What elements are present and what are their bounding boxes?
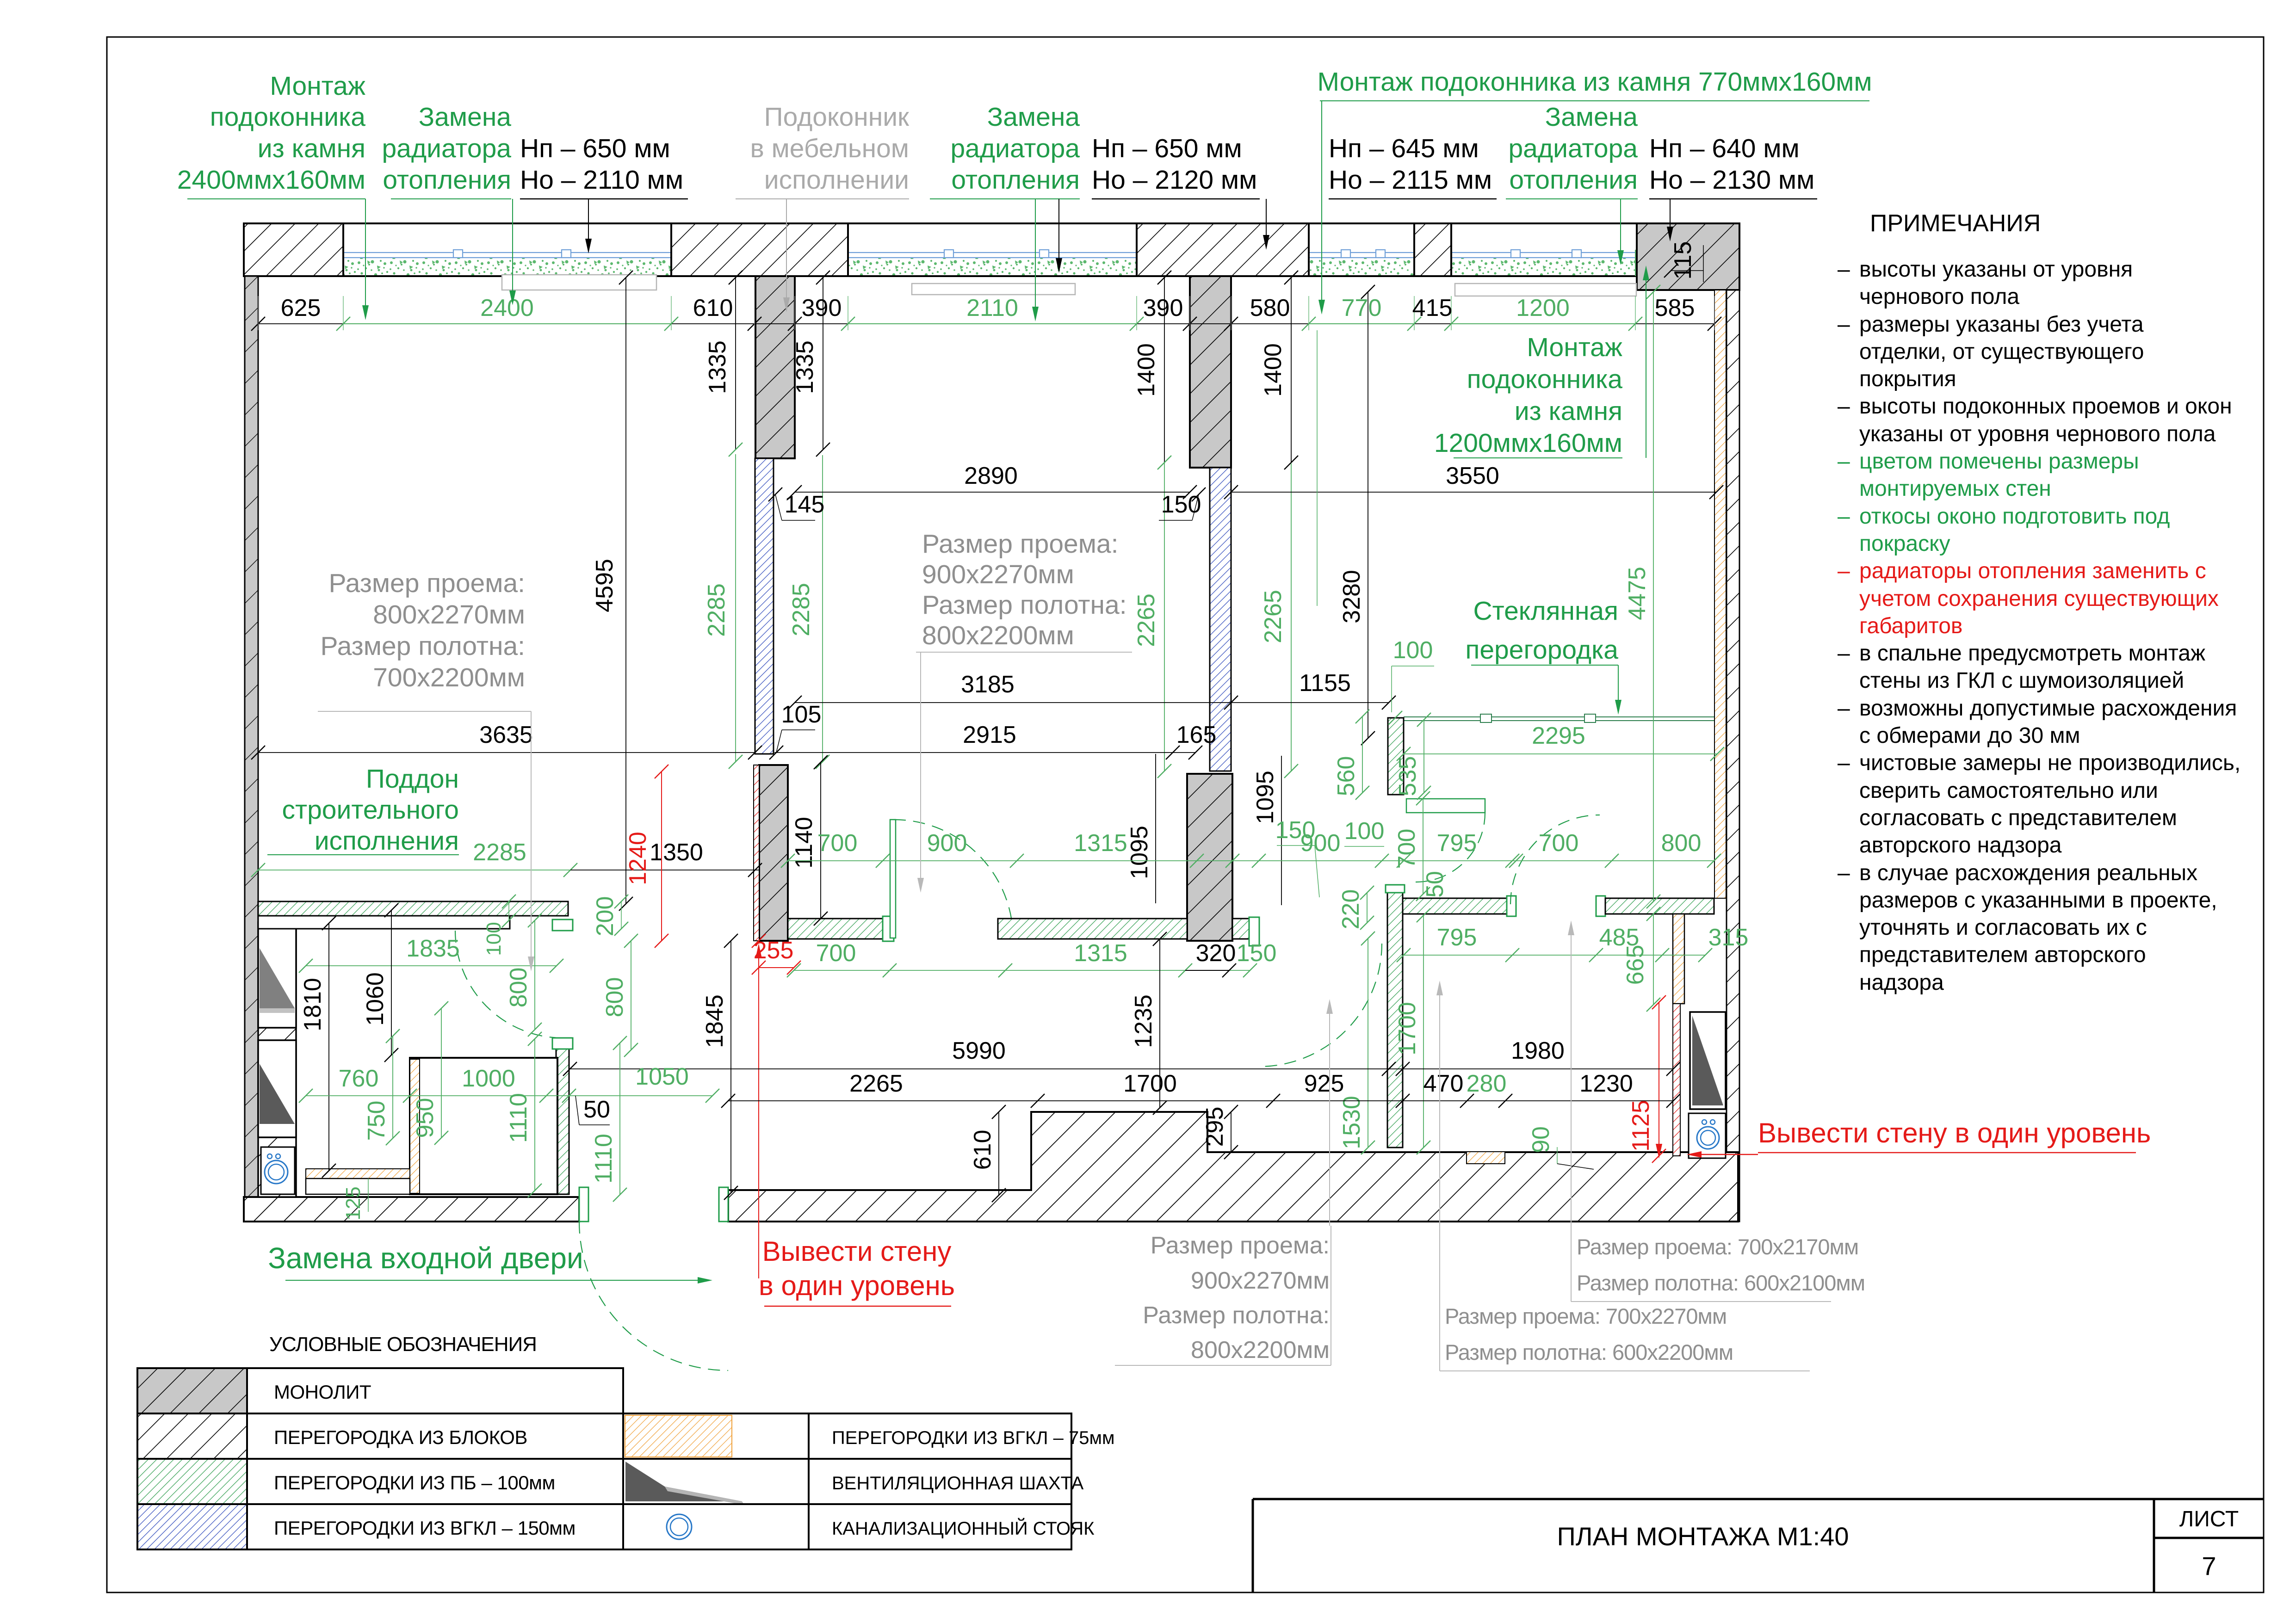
svg-text:795: 795 <box>1437 830 1477 857</box>
svg-text:5990: 5990 <box>952 1037 1006 1064</box>
svg-text:2285: 2285 <box>473 839 526 866</box>
svg-text:Нп – 645 мм: Нп – 645 мм <box>1329 134 1479 163</box>
svg-text:925: 925 <box>1304 1070 1344 1097</box>
svg-text:800: 800 <box>601 977 628 1018</box>
svg-text:1095: 1095 <box>1126 826 1153 879</box>
svg-text:указаны от уровня чернового по: указаны от уровня чернового пола <box>1859 422 2216 446</box>
svg-text:ПЛАН МОНТАЖА М1:40: ПЛАН МОНТАЖА М1:40 <box>1557 1522 1849 1551</box>
svg-text:Размер проема:: Размер проема: <box>1151 1232 1330 1259</box>
svg-text:1095: 1095 <box>1252 771 1279 824</box>
svg-text:2265: 2265 <box>849 1070 903 1097</box>
svg-text:560: 560 <box>1333 756 1360 796</box>
svg-text:3635: 3635 <box>479 722 533 748</box>
svg-text:возможны допустимые расхождени: возможны допустимые расхождения <box>1859 696 2237 721</box>
svg-text:–: – <box>1838 696 1850 721</box>
svg-text:1835: 1835 <box>406 935 460 962</box>
svg-text:согласовать с представителем: согласовать с представителем <box>1859 806 2177 830</box>
svg-text:МОНОЛИТ: МОНОЛИТ <box>274 1381 371 1403</box>
svg-text:900х2270мм: 900х2270мм <box>922 560 1074 589</box>
svg-text:Нп – 640 мм: Нп – 640 мм <box>1649 134 1800 163</box>
svg-text:Монтаж: Монтаж <box>1527 333 1622 362</box>
svg-text:800: 800 <box>505 968 532 1008</box>
svg-text:отопления: отопления <box>1509 165 1638 195</box>
svg-text:отопления: отопления <box>383 165 511 195</box>
svg-text:700: 700 <box>817 830 858 857</box>
svg-text:1155: 1155 <box>1299 670 1351 697</box>
svg-text:625: 625 <box>281 295 321 321</box>
svg-text:1230: 1230 <box>1579 1070 1633 1097</box>
svg-text:1845: 1845 <box>701 994 728 1048</box>
svg-text:Размер полотна:: Размер полотна: <box>320 631 525 661</box>
svg-text:Размер проема:: Размер проема: <box>329 568 525 598</box>
svg-text:Вывести стену в один уровень: Вывести стену в один уровень <box>1758 1117 2151 1148</box>
svg-text:в мебельном: в мебельном <box>750 134 909 163</box>
svg-text:200: 200 <box>592 896 619 937</box>
svg-text:ВЕНТИЛЯЦИОННАЯ ШАХТА: ВЕНТИЛЯЦИОННАЯ ШАХТА <box>832 1473 1084 1493</box>
svg-text:1110: 1110 <box>590 1134 617 1184</box>
svg-text:3550: 3550 <box>1446 463 1499 489</box>
svg-text:315: 315 <box>1708 924 1749 951</box>
svg-text:150: 150 <box>1161 491 1201 518</box>
svg-text:Монтаж: Монтаж <box>270 71 365 101</box>
svg-text:Размер полотна:: Размер полотна: <box>922 590 1127 620</box>
svg-text:Подоконник: Подоконник <box>764 102 910 132</box>
svg-text:Нп – 650 мм: Нп – 650 мм <box>1092 134 1242 163</box>
svg-text:Размер полотна: 600х2100мм: Размер полотна: 600х2100мм <box>1577 1271 1865 1295</box>
svg-text:с обмерами до 30 мм: с обмерами до 30 мм <box>1859 723 2080 748</box>
svg-text:в спальне предусмотреть монтаж: в спальне предусмотреть монтаж <box>1859 641 2205 666</box>
svg-text:радиатора: радиатора <box>1508 134 1638 163</box>
svg-text:2285: 2285 <box>703 583 730 637</box>
svg-text:–: – <box>1838 751 1850 775</box>
svg-text:–: – <box>1838 641 1850 666</box>
svg-text:2285: 2285 <box>788 583 815 636</box>
svg-text:2915: 2915 <box>963 722 1016 748</box>
svg-text:100: 100 <box>1344 818 1385 845</box>
svg-text:ПЕРЕГОРОДКИ ИЗ ПБ – 100мм: ПЕРЕГОРОДКИ ИЗ ПБ – 100мм <box>274 1472 555 1493</box>
svg-text:4595: 4595 <box>591 559 618 612</box>
svg-text:–: – <box>1838 449 1850 474</box>
svg-text:100: 100 <box>1393 637 1433 664</box>
svg-text:Монтаж подоконника из камня 77: Монтаж подоконника из камня 770ммх160мм <box>1317 67 1872 97</box>
svg-text:1400: 1400 <box>1260 343 1287 397</box>
svg-text:–: – <box>1838 559 1850 583</box>
svg-text:610: 610 <box>969 1130 996 1170</box>
svg-text:4475: 4475 <box>1624 567 1651 620</box>
svg-text:Размер полотна: 600х2200мм: Размер полотна: 600х2200мм <box>1445 1340 1733 1364</box>
svg-text:–: – <box>1838 394 1850 419</box>
svg-text:–: – <box>1838 861 1850 885</box>
svg-text:750: 750 <box>363 1101 390 1141</box>
svg-text:535: 535 <box>1394 756 1421 796</box>
svg-text:ПЕРЕГОРОДКА ИЗ БЛОКОВ: ПЕРЕГОРОДКА ИЗ БЛОКОВ <box>274 1426 527 1448</box>
svg-text:сверить самостоятельно или: сверить самостоятельно или <box>1859 778 2158 803</box>
svg-text:покрытия: покрытия <box>1859 367 1956 391</box>
svg-text:145: 145 <box>785 491 825 518</box>
svg-text:УСЛОВНЫЕ ОБОЗНАЧЕНИЯ: УСЛОВНЫЕ ОБОЗНАЧЕНИЯ <box>269 1333 537 1356</box>
svg-text:1315: 1315 <box>1074 830 1127 857</box>
svg-text:1050: 1050 <box>635 1063 689 1090</box>
svg-text:в один уровень: в один уровень <box>759 1270 955 1301</box>
svg-text:665: 665 <box>1622 945 1649 985</box>
svg-text:760: 760 <box>339 1065 379 1092</box>
svg-text:монтируемых стен: монтируемых стен <box>1859 476 2051 501</box>
svg-text:1400: 1400 <box>1133 343 1160 397</box>
svg-text:800: 800 <box>1661 830 1702 857</box>
svg-text:470: 470 <box>1423 1070 1464 1097</box>
svg-text:3185: 3185 <box>961 671 1015 698</box>
svg-text:радиатора: радиатора <box>382 134 511 163</box>
svg-text:950: 950 <box>412 1098 439 1138</box>
svg-text:–: – <box>1838 312 1850 337</box>
svg-text:Нп – 650 мм: Нп – 650 мм <box>520 134 670 163</box>
svg-text:900: 900 <box>927 830 967 857</box>
svg-text:100: 100 <box>483 922 505 956</box>
svg-text:отопления: отопления <box>951 165 1080 195</box>
svg-text:280: 280 <box>1467 1070 1507 1097</box>
svg-text:чернового пола: чернового пола <box>1859 284 2019 309</box>
svg-text:220: 220 <box>1337 889 1364 930</box>
svg-text:КАНАЛИЗАЦИОННЫЙ СТОЯК: КАНАЛИЗАЦИОННЫЙ СТОЯК <box>832 1518 1095 1539</box>
svg-text:перегородка: перегородка <box>1465 635 1618 665</box>
svg-text:610: 610 <box>693 295 733 321</box>
svg-text:800х2270мм: 800х2270мм <box>373 600 525 629</box>
svg-text:900х2270мм: 900х2270мм <box>1191 1267 1330 1294</box>
svg-text:1060: 1060 <box>362 972 389 1026</box>
svg-text:радиаторы отопления заменить с: радиаторы отопления заменить с <box>1859 559 2206 583</box>
svg-text:165: 165 <box>1176 722 1217 748</box>
svg-text:2295: 2295 <box>1532 722 1585 749</box>
svg-text:105: 105 <box>781 701 822 728</box>
svg-text:из камня: из камня <box>1515 396 1622 426</box>
svg-text:2265: 2265 <box>1260 590 1287 643</box>
svg-text:Но – 2120 мм: Но – 2120 мм <box>1092 165 1257 195</box>
svg-text:1350: 1350 <box>650 839 703 866</box>
svg-text:1240: 1240 <box>625 832 651 885</box>
svg-text:уточнять и согласовать их с: уточнять и согласовать их с <box>1859 915 2147 940</box>
svg-text:150: 150 <box>1237 940 1277 967</box>
svg-text:295: 295 <box>1201 1107 1228 1147</box>
svg-text:1980: 1980 <box>1511 1037 1565 1064</box>
svg-text:7: 7 <box>2202 1551 2216 1580</box>
svg-text:откосы оконо подготовить под: откосы оконо подготовить под <box>1859 504 2170 529</box>
svg-text:габаритов: габаритов <box>1859 614 1962 638</box>
svg-text:Размер проема: 700х2270мм: Размер проема: 700х2270мм <box>1445 1304 1727 1328</box>
svg-text:320: 320 <box>1196 940 1236 967</box>
svg-text:1700: 1700 <box>1123 1070 1177 1097</box>
svg-text:800х2200мм: 800х2200мм <box>1191 1337 1330 1364</box>
svg-text:390: 390 <box>802 295 842 321</box>
svg-text:подоконника: подоконника <box>210 102 366 132</box>
svg-text:отделки, от существующего: отделки, от существующего <box>1859 339 2144 364</box>
svg-text:1200ммх160мм: 1200ммх160мм <box>1434 428 1622 458</box>
svg-text:1235: 1235 <box>1130 994 1157 1048</box>
svg-text:–: – <box>1838 257 1850 282</box>
svg-text:строительного: строительного <box>282 795 459 825</box>
svg-text:390: 390 <box>1143 295 1183 321</box>
svg-text:авторского надзора: авторского надзора <box>1859 833 2062 858</box>
svg-text:Размер проема: 700х2170мм: Размер проема: 700х2170мм <box>1577 1234 1858 1259</box>
svg-text:–: – <box>1838 504 1850 529</box>
svg-text:115: 115 <box>1670 241 1696 280</box>
svg-text:700: 700 <box>1393 829 1420 869</box>
svg-text:ПРИМЕЧАНИЯ: ПРИМЕЧАНИЯ <box>1870 210 2041 237</box>
svg-text:1125: 1125 <box>1628 1100 1654 1152</box>
svg-text:2400ммх160мм: 2400ммх160мм <box>177 165 365 195</box>
svg-text:2400: 2400 <box>480 295 534 321</box>
svg-text:Размер полотна:: Размер полотна: <box>1143 1302 1330 1329</box>
svg-text:2890: 2890 <box>964 463 1018 489</box>
svg-text:1200: 1200 <box>1516 295 1570 321</box>
svg-text:исполнении: исполнении <box>764 165 909 195</box>
svg-text:1810: 1810 <box>299 978 326 1031</box>
svg-text:в случае расхождения реальных: в случае расхождения реальных <box>1859 861 2197 885</box>
svg-text:покраску: покраску <box>1859 531 1950 556</box>
svg-text:размеры указаны без учета: размеры указаны без учета <box>1859 312 2144 337</box>
svg-text:1335: 1335 <box>704 340 731 394</box>
svg-text:800х2200мм: 800х2200мм <box>922 621 1074 650</box>
svg-text:2110: 2110 <box>966 295 1018 321</box>
svg-text:размеров с указанными в проект: размеров с указанными в проекте, <box>1859 888 2217 913</box>
svg-text:Но – 2110 мм: Но – 2110 мм <box>520 165 683 195</box>
svg-text:415: 415 <box>1412 295 1453 321</box>
svg-text:2265: 2265 <box>1133 593 1160 647</box>
svg-text:подоконника: подоконника <box>1467 364 1623 394</box>
svg-text:радиатора: радиатора <box>950 134 1080 163</box>
svg-text:ПЕРЕГОРОДКИ ИЗ ВГКЛ – 150мм: ПЕРЕГОРОДКИ ИЗ ВГКЛ – 150мм <box>274 1517 576 1539</box>
svg-text:1530: 1530 <box>1338 1096 1365 1149</box>
svg-text:700: 700 <box>816 940 856 967</box>
svg-text:Замена: Замена <box>419 102 511 132</box>
svg-text:1110: 1110 <box>505 1093 532 1143</box>
svg-text:50: 50 <box>1422 871 1448 898</box>
svg-text:Замена входной двери: Замена входной двери <box>268 1241 583 1275</box>
svg-text:Размер проема:: Размер проема: <box>922 529 1118 559</box>
svg-text:чистовые замеры не производили: чистовые замеры не производились, <box>1859 751 2240 775</box>
svg-text:надзора: надзора <box>1859 970 1944 995</box>
svg-text:представителем авторского: представителем авторского <box>1859 943 2146 967</box>
svg-text:Замена: Замена <box>987 102 1080 132</box>
svg-text:1700: 1700 <box>1394 1002 1421 1055</box>
svg-text:Но – 2130 мм: Но – 2130 мм <box>1649 165 1814 195</box>
svg-text:90: 90 <box>1528 1126 1554 1153</box>
svg-text:стены из ГКЛ с шумоизоляцией: стены из ГКЛ с шумоизоляцией <box>1859 668 2184 693</box>
svg-text:700: 700 <box>1539 830 1579 857</box>
svg-text:исполнения: исполнения <box>315 826 459 856</box>
svg-text:высоты подоконных проемов и ок: высоты подоконных проемов и окон <box>1859 394 2232 419</box>
svg-text:Поддон: Поддон <box>366 764 459 794</box>
svg-text:ПЕРЕГОРОДКИ ИЗ ВГКЛ – 75мм: ПЕРЕГОРОДКИ ИЗ ВГКЛ – 75мм <box>832 1428 1114 1448</box>
svg-text:125: 125 <box>342 1186 365 1220</box>
svg-text:ЛИСТ: ЛИСТ <box>2179 1507 2239 1531</box>
svg-text:1000: 1000 <box>462 1065 515 1092</box>
svg-text:Стеклянная: Стеклянная <box>1473 596 1618 626</box>
svg-text:900: 900 <box>1300 830 1341 857</box>
svg-text:3280: 3280 <box>1338 570 1365 623</box>
svg-text:Но – 2115 мм: Но – 2115 мм <box>1329 165 1492 195</box>
svg-text:Замена: Замена <box>1545 102 1638 132</box>
svg-text:50: 50 <box>583 1096 610 1123</box>
svg-text:учетом сохранения существующих: учетом сохранения существующих <box>1859 586 2219 611</box>
svg-text:высоты указаны от уровня: высоты указаны от уровня <box>1859 257 2133 282</box>
svg-text:из камня: из камня <box>258 134 365 163</box>
svg-text:700х2200мм: 700х2200мм <box>373 663 525 692</box>
svg-text:1335: 1335 <box>792 340 818 394</box>
svg-text:795: 795 <box>1437 924 1477 951</box>
svg-text:580: 580 <box>1250 295 1290 321</box>
svg-text:585: 585 <box>1655 295 1695 321</box>
svg-text:цветом помечены размеры: цветом помечены размеры <box>1859 449 2139 474</box>
svg-text:1315: 1315 <box>1074 940 1127 967</box>
svg-text:Вывести стену: Вывести стену <box>762 1236 952 1267</box>
